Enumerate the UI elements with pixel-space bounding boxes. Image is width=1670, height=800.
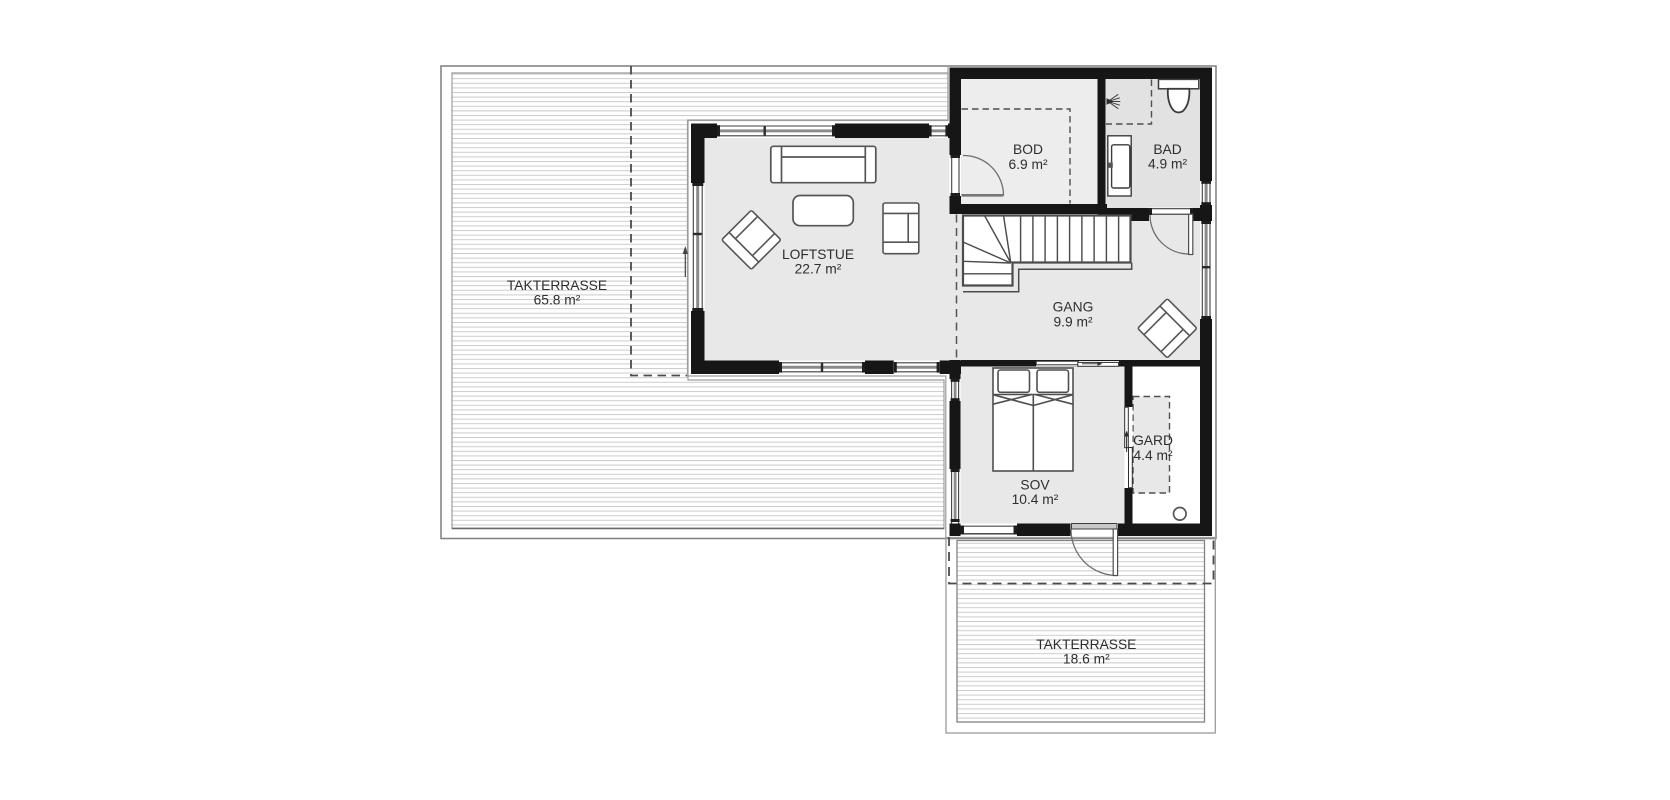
svg-text:TAKTERRASSE: TAKTERRASSE — [1036, 637, 1136, 652]
svg-text:SOV: SOV — [1020, 478, 1050, 493]
svg-text:TAKTERRASSE: TAKTERRASSE — [507, 278, 607, 293]
svg-text:BOD: BOD — [1013, 142, 1043, 157]
svg-text:GARD: GARD — [1133, 433, 1173, 448]
svg-text:22.7 m²: 22.7 m² — [795, 262, 842, 277]
svg-text:9.9 m²: 9.9 m² — [1053, 315, 1093, 330]
svg-text:10.4 m²: 10.4 m² — [1012, 492, 1059, 507]
svg-text:BAD: BAD — [1153, 142, 1181, 157]
svg-text:65.8 m²: 65.8 m² — [534, 293, 581, 308]
svg-text:GANG: GANG — [1053, 300, 1094, 315]
svg-text:18.6 m²: 18.6 m² — [1063, 651, 1110, 666]
svg-text:6.9 m²: 6.9 m² — [1008, 157, 1048, 172]
svg-text:4.4 m²: 4.4 m² — [1133, 448, 1173, 463]
svg-text:4.9 m²: 4.9 m² — [1148, 157, 1188, 172]
svg-text:LOFTSTUE: LOFTSTUE — [782, 247, 854, 262]
